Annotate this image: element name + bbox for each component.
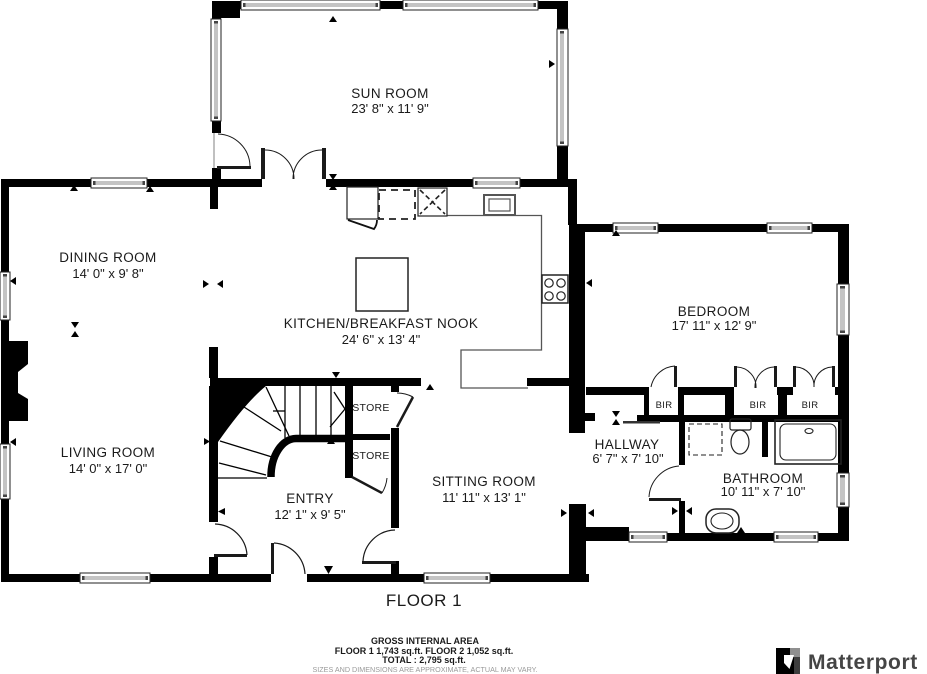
svg-text:10' 11" x 7' 10": 10' 11" x 7' 10": [721, 484, 806, 499]
svg-text:6' 7" x 7' 10": 6' 7" x 7' 10": [592, 451, 664, 466]
svg-text:BEDROOM: BEDROOM: [678, 304, 751, 319]
svg-text:14' 0" x 9' 8": 14' 0" x 9' 8": [72, 266, 144, 281]
svg-text:SITTING ROOM: SITTING ROOM: [432, 474, 536, 489]
svg-text:DINING ROOM: DINING ROOM: [59, 250, 156, 265]
svg-text:SUN ROOM: SUN ROOM: [351, 86, 428, 101]
svg-text:12' 1" x 9' 5": 12' 1" x 9' 5": [274, 507, 346, 522]
svg-text:24' 6" x 13' 4": 24' 6" x 13' 4": [342, 332, 421, 347]
svg-text:TOTAL : 2,795 sq.ft.: TOTAL : 2,795 sq.ft.: [382, 655, 466, 665]
svg-text:STORE: STORE: [352, 402, 389, 414]
svg-text:17' 11" x 12' 9": 17' 11" x 12' 9": [672, 318, 757, 333]
svg-text:BIR: BIR: [750, 400, 767, 411]
svg-text:HALLWAY: HALLWAY: [595, 437, 660, 452]
svg-text:14' 0" x 17' 0": 14' 0" x 17' 0": [69, 461, 148, 476]
svg-text:Matterport: Matterport: [808, 651, 918, 674]
svg-text:23' 8" x 11' 9": 23' 8" x 11' 9": [351, 101, 429, 116]
svg-text:STORE: STORE: [352, 450, 389, 462]
svg-text:ENTRY: ENTRY: [286, 491, 334, 506]
svg-text:LIVING ROOM: LIVING ROOM: [61, 445, 155, 460]
svg-text:SIZES AND DIMENSIONS ARE APPRO: SIZES AND DIMENSIONS ARE APPROXIMATE, AC…: [313, 665, 538, 674]
svg-text:11' 11" x 13' 1": 11' 11" x 13' 1": [442, 490, 526, 505]
svg-text:GROSS INTERNAL AREA: GROSS INTERNAL AREA: [371, 636, 480, 646]
svg-text:KITCHEN/BREAKFAST NOOK: KITCHEN/BREAKFAST NOOK: [284, 316, 479, 331]
svg-text:BIR: BIR: [656, 400, 673, 411]
svg-text:FLOOR 1: FLOOR 1: [386, 591, 462, 610]
svg-text:BIR: BIR: [802, 400, 819, 411]
